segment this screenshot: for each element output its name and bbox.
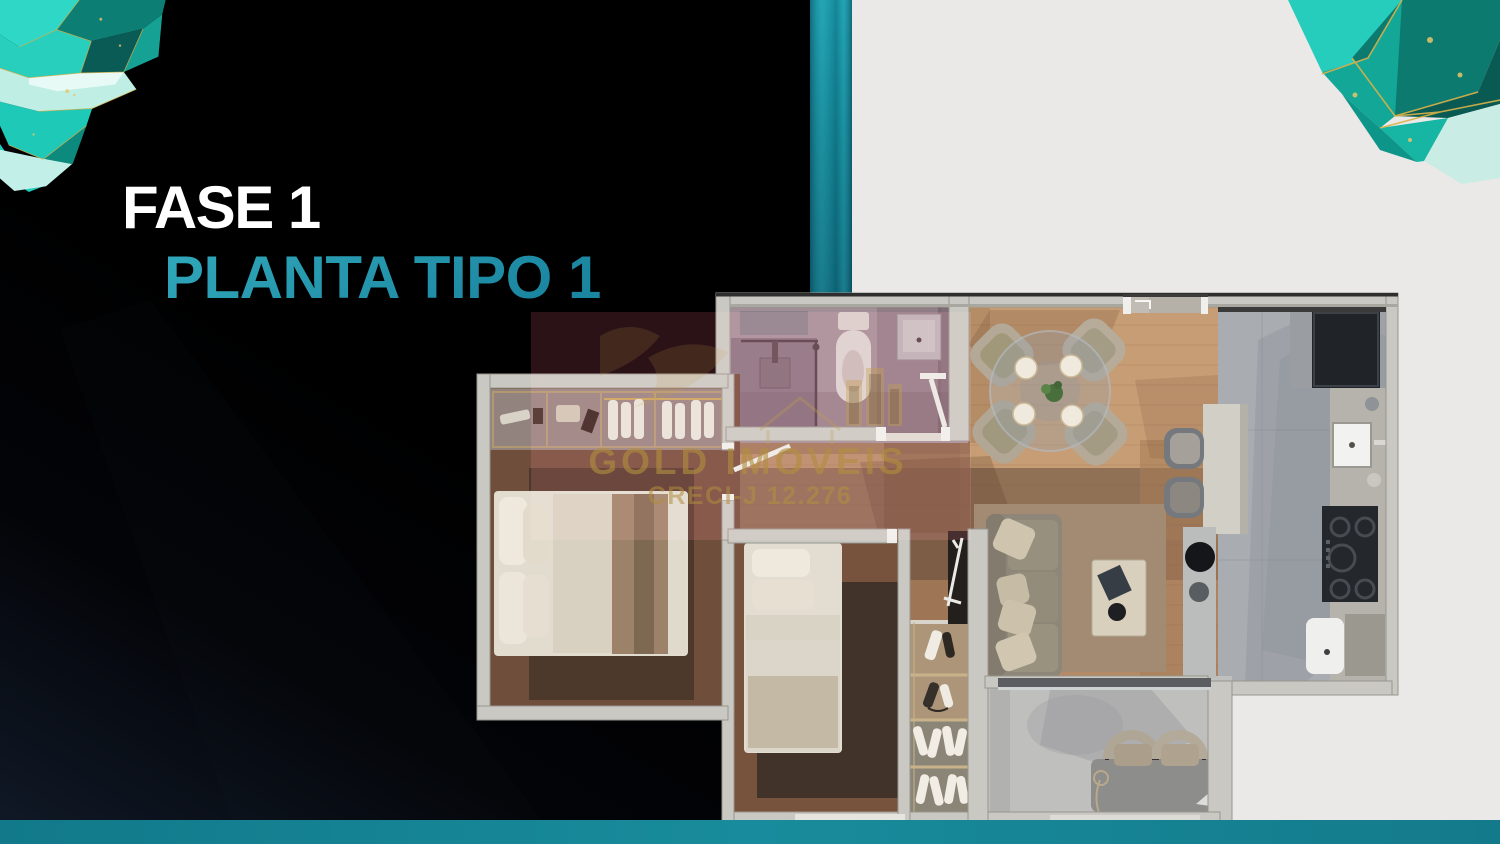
svg-text:GOLD IMOVEIS: GOLD IMOVEIS: [588, 441, 907, 482]
svg-text:PLANTA TIPO 1: PLANTA TIPO 1: [164, 244, 601, 311]
svg-text:CRECI-J 12.276: CRECI-J 12.276: [648, 482, 852, 510]
svg-text:FASE 1: FASE 1: [122, 174, 320, 241]
